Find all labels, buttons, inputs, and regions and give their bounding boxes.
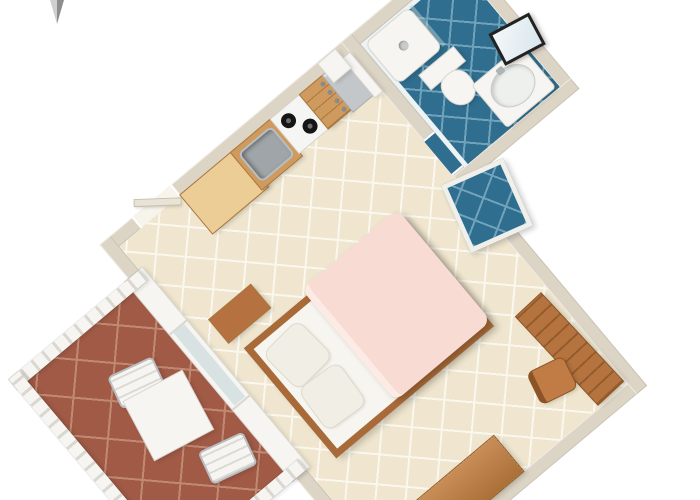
cooktop-burner [278, 110, 299, 131]
cooktop-burner [299, 116, 320, 137]
north-arrow-icon [44, 0, 74, 26]
drawer-handle [334, 97, 341, 104]
drawer-handle [319, 80, 326, 87]
drawer-handle [341, 106, 348, 113]
apartment-plan [0, 0, 700, 500]
drawer-handle [327, 89, 334, 96]
floor-plan-scene [0, 0, 700, 500]
shower-drain [397, 39, 411, 53]
